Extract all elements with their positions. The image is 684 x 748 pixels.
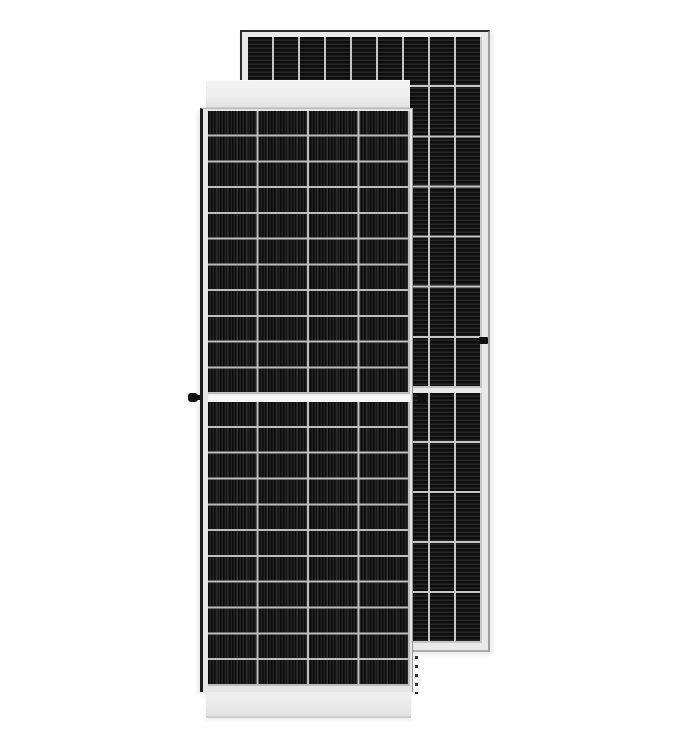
front-panel-cells-upper xyxy=(208,111,410,394)
solar-panel-front xyxy=(200,80,413,719)
front-panel-body xyxy=(200,108,413,692)
product-image-canvas xyxy=(0,0,684,748)
front-panel-top-frame xyxy=(206,80,410,108)
frame-side-clip xyxy=(479,337,488,344)
dashed-edge-marks xyxy=(415,656,418,694)
front-panel-cells-lower xyxy=(208,402,410,686)
front-panel-center-gap xyxy=(208,394,410,402)
front-panel-bottom-frame xyxy=(206,692,411,718)
junction-mark xyxy=(417,394,427,401)
grounding-knob xyxy=(188,393,198,402)
front-panel-cell-grid xyxy=(208,111,410,686)
